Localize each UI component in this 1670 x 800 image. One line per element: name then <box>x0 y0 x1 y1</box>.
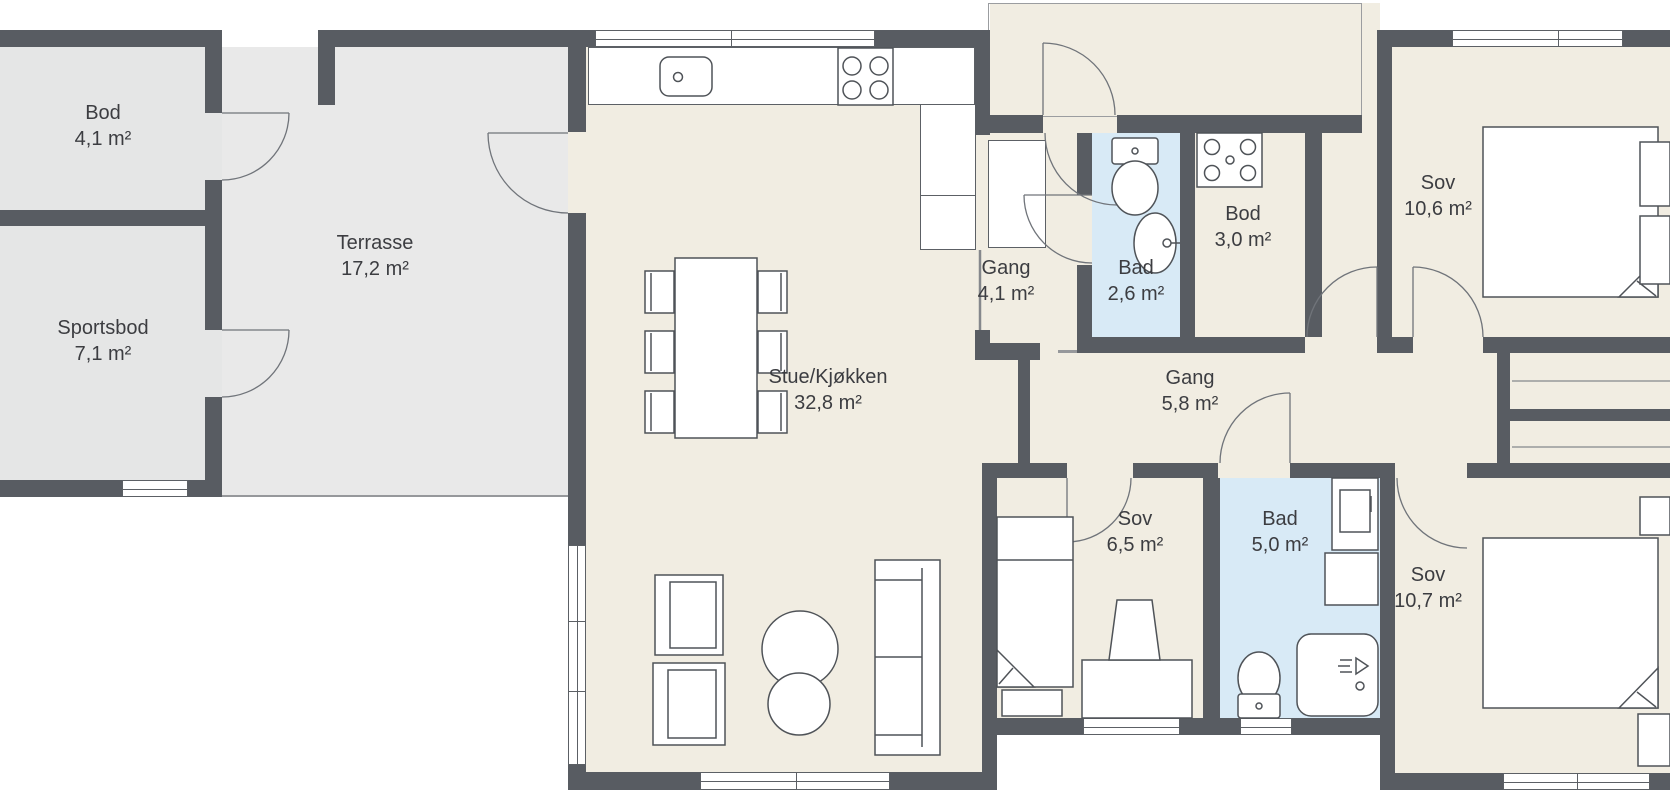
room-name: Bad <box>1200 506 1360 532</box>
room-label-stue-kjokken: Stue/Kjøkken 32,8 m² <box>738 364 918 416</box>
toilet-icon <box>1112 138 1158 215</box>
room-area: 5,8 m² <box>1110 391 1270 417</box>
sofa <box>875 560 940 755</box>
room-name: Bod <box>23 100 183 126</box>
room-name: Sov <box>1055 506 1215 532</box>
room-area: 10,7 m² <box>1348 588 1508 614</box>
room-label-sov3: Sov 10,7 m² <box>1348 562 1508 614</box>
nightstand <box>1002 690 1062 716</box>
door-arc-entrance-outer <box>1043 43 1115 115</box>
toilet-icon <box>1238 652 1280 718</box>
door-arc-sov1 <box>1413 267 1483 337</box>
washing-machine-icon <box>1197 133 1262 187</box>
coffee-tables <box>762 611 838 735</box>
room-name: Bad <box>1056 255 1216 281</box>
shower-icon <box>1297 634 1378 716</box>
room-area: 4,1 m² <box>23 126 183 152</box>
door-arc-bod-outbuilding <box>222 113 289 180</box>
room-name: Bod <box>1163 201 1323 227</box>
armchair <box>653 663 725 745</box>
door-arc-bad-liten <box>1024 195 1092 263</box>
room-area: 17,2 m² <box>295 256 455 282</box>
room-area: 7,1 m² <box>23 341 183 367</box>
room-label-bad-liten: Bad 2,6 m² <box>1056 255 1216 307</box>
room-area: 3,0 m² <box>1163 227 1323 253</box>
room-name: Gang <box>1110 365 1270 391</box>
room-area: 32,8 m² <box>738 390 918 416</box>
door-arc-bod-indre <box>1307 267 1377 337</box>
room-label-sov2: Sov 6,5 m² <box>1055 506 1215 558</box>
door-arc-entrance-inner <box>1045 133 1117 205</box>
room-label-sov1: Sov 10,6 m² <box>1358 170 1518 222</box>
closet-rods <box>1512 381 1670 447</box>
kitchen-sink-icon <box>660 57 712 96</box>
floor-plan: Bod 4,1 m² Sportsbod 7,1 m² Terrasse 17,… <box>0 0 1670 800</box>
room-label-gang-indre: Gang 5,8 m² <box>1110 365 1270 417</box>
room-label-bod-outbuilding: Bod 4,1 m² <box>23 100 183 152</box>
door-arc-terrasse <box>488 133 568 213</box>
room-area: 6,5 m² <box>1055 532 1215 558</box>
room-name: Stue/Kjøkken <box>738 364 918 390</box>
room-name: Sportsbod <box>23 315 183 341</box>
room-area: 10,6 m² <box>1358 196 1518 222</box>
room-label-sportsbod: Sportsbod 7,1 m² <box>23 315 183 367</box>
room-name: Terrasse <box>295 230 455 256</box>
room-name: Sov <box>1348 562 1508 588</box>
room-name: Sov <box>1358 170 1518 196</box>
room-label-bad-stor: Bad 5,0 m² <box>1200 506 1360 558</box>
door-arc-sov3 <box>1397 478 1467 548</box>
double-bed <box>1483 497 1670 766</box>
room-label-bod-indre: Bod 3,0 m² <box>1163 201 1323 253</box>
room-area: 2,6 m² <box>1056 281 1216 307</box>
door-arc-sportsbod <box>222 330 289 397</box>
desk-chair <box>1109 600 1160 660</box>
room-label-terrasse: Terrasse 17,2 m² <box>295 230 455 282</box>
room-area: 5,0 m² <box>1200 532 1360 558</box>
armchair <box>655 575 723 655</box>
desk <box>1082 660 1192 718</box>
stove-icon <box>838 48 893 105</box>
